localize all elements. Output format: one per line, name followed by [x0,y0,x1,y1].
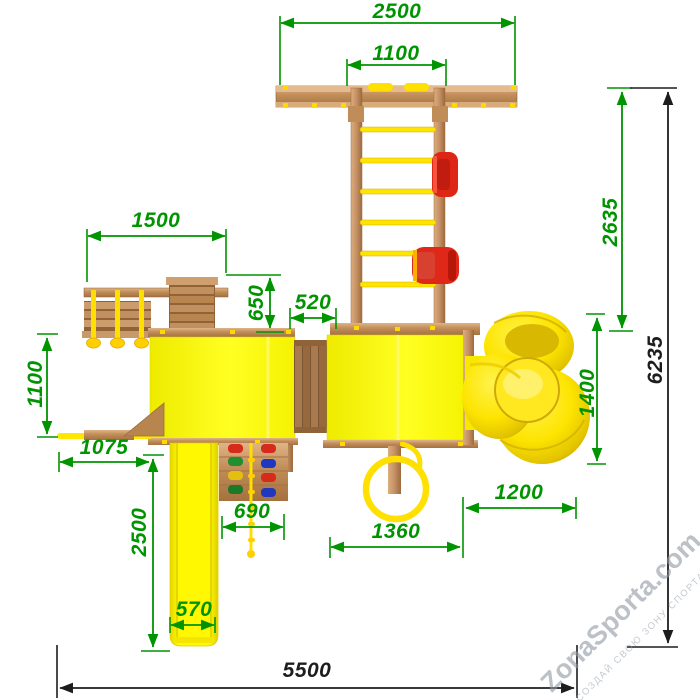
dim-ladder-span: 1100 [372,42,419,66]
dim-main-slide-width: 570 [176,598,213,622]
drawing-canvas: 2500 1100 1500 650 520 2635 6235 1400 11… [0,0,700,700]
dim-climb-wall-width: 690 [234,500,271,524]
dim-spiral-slide-width: 1200 [495,481,544,505]
dim-left-module-depth: 650 [245,285,269,322]
dim-upper-section-depth: 2635 [599,198,623,247]
dim-total-width: 5500 [283,659,332,683]
dim-ring-module-width: 1360 [372,520,421,544]
dim-main-slide-length: 2500 [128,508,152,557]
dim-top-beam-width: 2500 [373,0,422,24]
dim-left-slide-depth: 1100 [24,360,48,407]
dim-left-slide-length: 1075 [80,436,129,460]
dimension-lines [0,0,700,700]
dim-left-module-width: 1500 [132,209,181,233]
dim-spiral-slide-depth: 1400 [576,369,600,418]
dim-total-depth: 6235 [644,336,668,385]
dim-bridge-width: 520 [295,291,332,315]
